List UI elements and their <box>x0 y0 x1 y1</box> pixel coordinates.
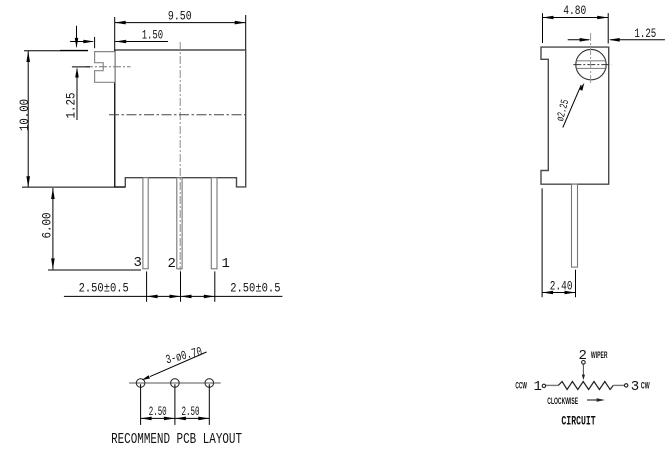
svg-text:1: 1 <box>534 379 542 395</box>
svg-text:CLOCKWISE: CLOCKWISE <box>547 396 578 406</box>
svg-text:2.50: 2.50 <box>182 404 200 419</box>
svg-text:10.00: 10.00 <box>17 99 32 131</box>
svg-text:1.25: 1.25 <box>64 93 79 119</box>
svg-text:6.00: 6.00 <box>40 213 55 239</box>
svg-text:WIPER: WIPER <box>591 350 608 360</box>
svg-text:CW: CW <box>641 381 650 391</box>
svg-text:2: 2 <box>168 256 176 272</box>
svg-text:1: 1 <box>222 256 230 272</box>
svg-text:3: 3 <box>134 255 142 271</box>
svg-text:2.50±0.5: 2.50±0.5 <box>79 280 129 295</box>
svg-text:3: 3 <box>631 379 639 395</box>
svg-text:2.40: 2.40 <box>550 279 573 294</box>
svg-text:9.50: 9.50 <box>168 9 192 24</box>
svg-text:2.50±0.5: 2.50±0.5 <box>230 280 280 295</box>
svg-text:1.25: 1.25 <box>634 26 656 41</box>
svg-text:CCW: CCW <box>515 381 527 391</box>
svg-text:4.80: 4.80 <box>563 3 586 18</box>
svg-text:1.50: 1.50 <box>142 28 163 43</box>
svg-text:2.50: 2.50 <box>149 404 167 419</box>
svg-text:RECOMMEND PCB LAYOUT: RECOMMEND PCB LAYOUT <box>111 431 242 448</box>
svg-text:CIRCUIT: CIRCUIT <box>561 413 595 428</box>
